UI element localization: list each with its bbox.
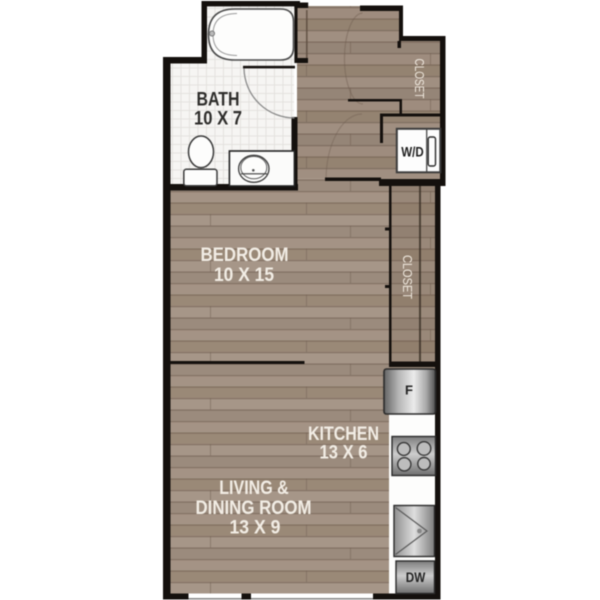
svg-text:BEDROOM: BEDROOM	[201, 245, 289, 266]
svg-text:BATH: BATH	[197, 90, 240, 111]
svg-text:CLOSET: CLOSET	[400, 255, 415, 299]
svg-text:DINING ROOM: DINING ROOM	[196, 498, 312, 519]
svg-text:10 X 7: 10 X 7	[194, 109, 242, 130]
svg-text:W/D: W/D	[401, 145, 424, 160]
svg-text:10 X 15: 10 X 15	[214, 265, 274, 286]
svg-text:13 X 9: 13 X 9	[230, 518, 281, 539]
svg-text:CLOSET: CLOSET	[412, 59, 426, 99]
svg-text:LIVING &: LIVING &	[219, 478, 289, 499]
svg-text:DW: DW	[406, 570, 426, 585]
svg-text:F: F	[405, 383, 413, 398]
svg-text:13 X 6: 13 X 6	[320, 442, 368, 463]
